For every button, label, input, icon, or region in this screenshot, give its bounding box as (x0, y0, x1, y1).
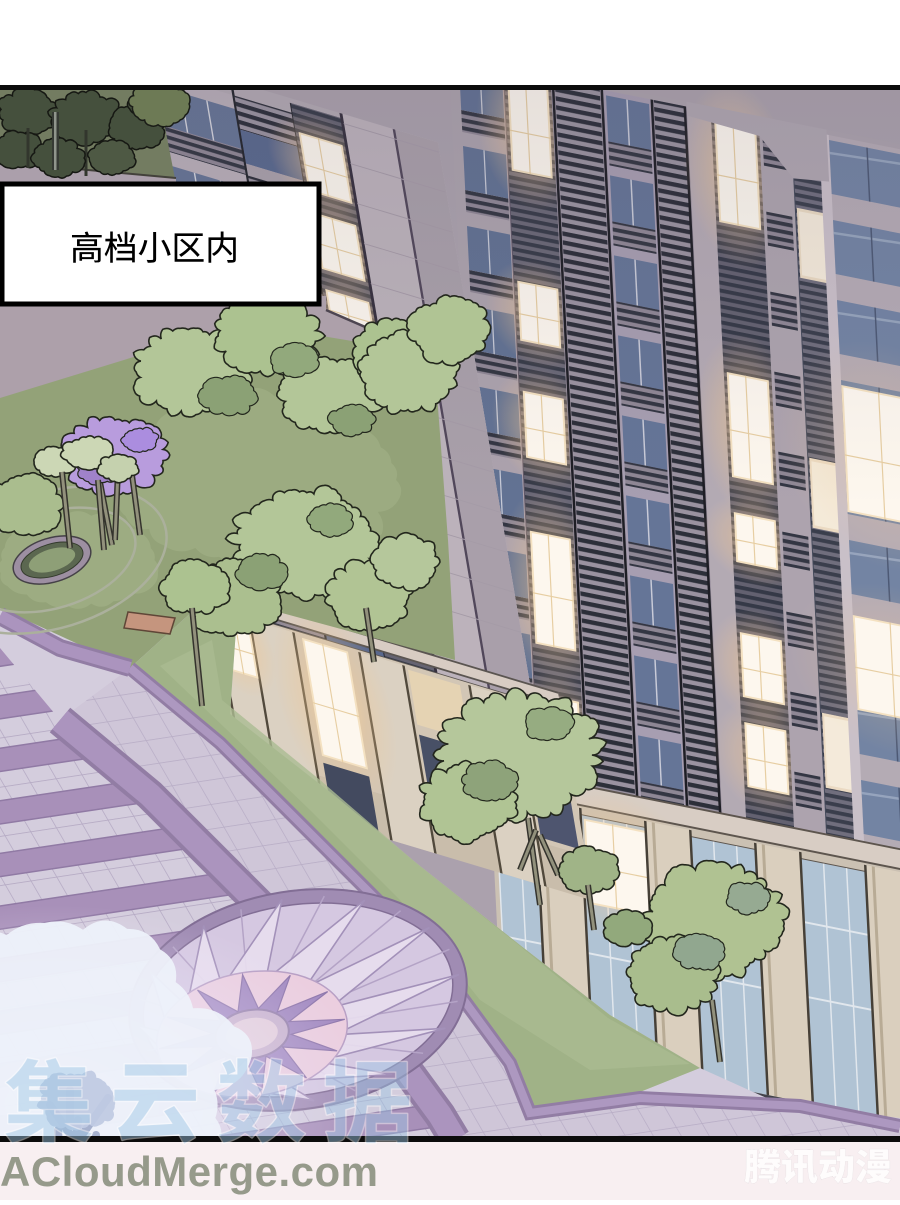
svg-text:ACloudMerge.com: ACloudMerge.com (0, 1148, 379, 1195)
